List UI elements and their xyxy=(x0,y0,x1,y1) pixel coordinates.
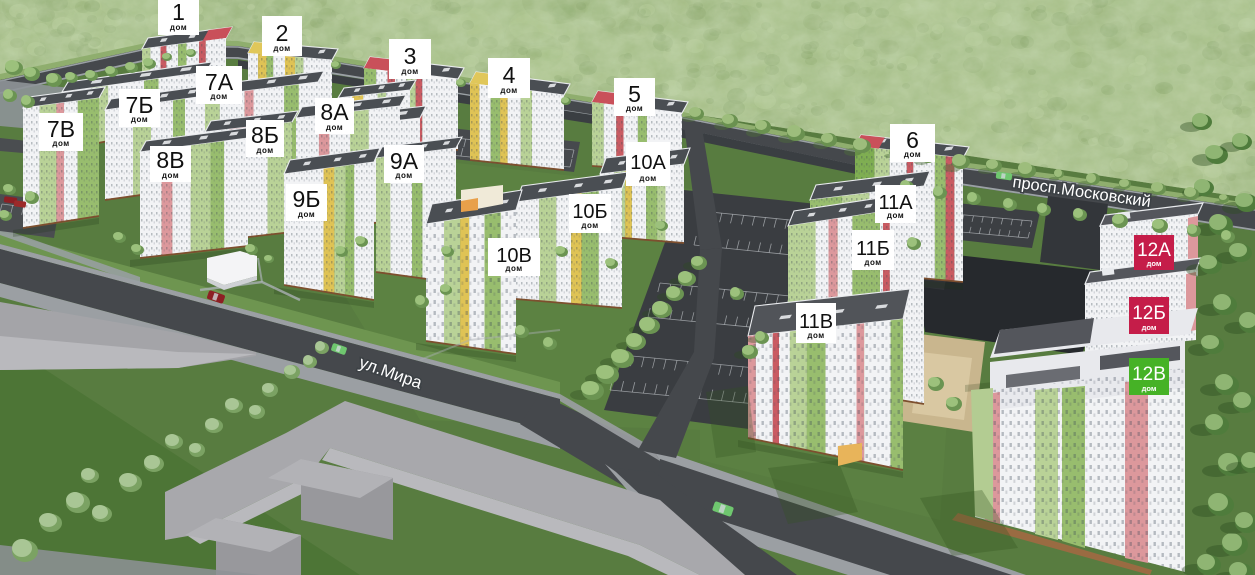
svg-text:дом: дом xyxy=(1142,384,1157,393)
svg-text:9Б: 9Б xyxy=(293,186,321,212)
svg-text:дом: дом xyxy=(162,171,179,180)
svg-text:дом: дом xyxy=(887,211,904,220)
svg-text:3: 3 xyxy=(404,43,417,69)
svg-text:дом: дом xyxy=(1142,323,1157,332)
svg-text:дом: дом xyxy=(298,210,315,219)
svg-text:11В: 11В xyxy=(799,311,833,333)
svg-text:4: 4 xyxy=(503,62,516,88)
svg-text:дом: дом xyxy=(864,258,881,267)
svg-text:12В: 12В xyxy=(1132,364,1166,385)
svg-text:2: 2 xyxy=(276,20,289,46)
svg-text:дом: дом xyxy=(639,174,656,183)
svg-text:дом: дом xyxy=(210,92,227,101)
svg-text:дом: дом xyxy=(401,67,418,76)
svg-text:8А: 8А xyxy=(320,99,349,125)
svg-text:дом: дом xyxy=(273,44,290,53)
svg-text:дом: дом xyxy=(807,331,824,340)
svg-text:дом: дом xyxy=(256,146,273,155)
svg-text:12А: 12А xyxy=(1137,240,1171,261)
svg-text:дом: дом xyxy=(505,264,522,273)
svg-text:1: 1 xyxy=(172,0,185,25)
svg-text:12Б: 12Б xyxy=(1132,303,1166,324)
svg-text:дом: дом xyxy=(500,86,517,95)
svg-text:8В: 8В xyxy=(156,147,184,173)
svg-text:8Б: 8Б xyxy=(251,122,279,148)
svg-text:дом: дом xyxy=(904,150,921,159)
svg-text:дом: дом xyxy=(131,115,148,124)
svg-text:дом: дом xyxy=(326,123,343,132)
svg-text:дом: дом xyxy=(581,221,598,230)
svg-text:дом: дом xyxy=(626,104,643,113)
svg-text:11Б: 11Б xyxy=(856,238,890,260)
svg-text:10А: 10А xyxy=(630,152,666,174)
svg-text:10Б: 10Б xyxy=(572,201,607,223)
svg-text:дом: дом xyxy=(52,139,69,148)
svg-text:дом: дом xyxy=(170,23,187,32)
svg-text:дом: дом xyxy=(1147,259,1162,268)
svg-text:дом: дом xyxy=(395,171,412,180)
